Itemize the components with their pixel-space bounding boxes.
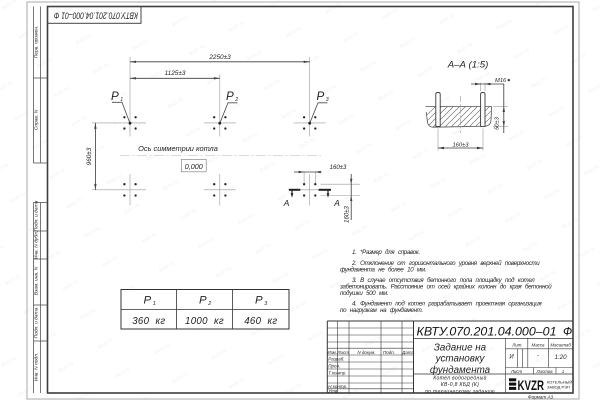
svg-text:КВТУ.070.201.04.000–01 Ф: КВТУ.070.201.04.000–01 Ф <box>54 11 138 21</box>
svg-text:-: - <box>537 353 539 359</box>
svg-text:Дата: Дата <box>401 350 414 355</box>
svg-text:360 кг: 360 кг <box>132 316 165 327</box>
svg-text:1: 1 <box>153 301 156 307</box>
svg-text:160±3: 160±3 <box>330 165 347 171</box>
svg-text:Разраб.: Разраб. <box>328 356 344 361</box>
svg-text:Формат А3: Формат А3 <box>528 394 554 399</box>
svg-text:1: 1 <box>120 97 123 103</box>
svg-text:фундамента не более 10 мм.: фундамента не более 10 мм. <box>340 267 426 274</box>
svg-text:P: P <box>317 90 325 103</box>
svg-text:P: P <box>111 90 119 103</box>
svg-text:по нагрузкам на фундамент.: по нагрузкам на фундамент. <box>340 307 423 314</box>
svg-text:Взам. инв. N: Взам. инв. N <box>33 266 39 295</box>
svg-text:2: 2 <box>207 301 211 307</box>
svg-text:И: И <box>509 354 514 360</box>
svg-text:Утв.: Утв. <box>328 389 338 394</box>
svg-text:1000 кг: 1000 кг <box>185 316 224 327</box>
svg-text:1125±3: 1125±3 <box>165 70 186 77</box>
svg-text:А: А <box>283 198 290 208</box>
svg-text:Лист: Лист <box>510 369 523 374</box>
svg-text:подушки 500 мм.: подушки 500 мм. <box>340 290 388 297</box>
svg-text:2: 2 <box>234 97 238 103</box>
svg-text:Подп. и дата: Подп. и дата <box>33 307 39 338</box>
svg-text:160±3: 160±3 <box>344 206 350 223</box>
svg-text:Инв. N дубл.: Инв. N дубл. <box>33 231 39 259</box>
svg-text:P: P <box>226 90 234 103</box>
svg-text:Задание на: Задание на <box>434 342 487 353</box>
svg-text:Котел водогрейный: Котел водогрейный <box>433 374 487 381</box>
svg-text:460 кг: 460 кг <box>244 316 277 327</box>
svg-text:Лит.: Лит. <box>511 343 522 348</box>
svg-text:0,000: 0,000 <box>185 162 203 171</box>
svg-text:N докум.: N докум. <box>357 350 375 355</box>
svg-text:Пров.: Пров. <box>328 363 340 368</box>
svg-text:50±3: 50±3 <box>495 116 501 130</box>
svg-text:А: А <box>333 198 340 208</box>
svg-text:Лист: Лист <box>336 350 349 355</box>
svg-text:Инв. N подл.: Инв. N подл. <box>33 353 39 382</box>
svg-text:Ф: Ф <box>563 326 572 339</box>
svg-text:3: 3 <box>326 97 329 103</box>
svg-text:Масштаб: Масштаб <box>550 343 571 348</box>
svg-text:P: P <box>199 295 207 307</box>
svg-text:Т.контр.: Т.контр. <box>328 370 346 375</box>
svg-text:Изм.: Изм. <box>327 350 337 355</box>
svg-text:Подп.: Подп. <box>383 350 395 355</box>
svg-text:КВТУ.070.201.04.000–01: КВТУ.070.201.04.000–01 <box>417 326 557 339</box>
svg-text:160±3: 160±3 <box>452 142 469 148</box>
svg-text:1. *Размер для справок.: 1. *Размер для справок. <box>352 249 420 256</box>
svg-text:А–А (1:5): А–А (1:5) <box>447 60 489 71</box>
svg-text:КОТЕЛЬНЫЙ: КОТЕЛЬНЫЙ <box>547 379 572 384</box>
svg-text:Листов: Листов <box>536 369 554 374</box>
svg-text:Справ. N: Справ. N <box>33 109 39 130</box>
svg-text:1:20: 1:20 <box>554 354 567 361</box>
svg-text:установку: установку <box>435 353 486 364</box>
svg-text:P: P <box>144 295 152 307</box>
svg-text:Масса: Масса <box>532 343 546 348</box>
svg-text:960±3: 960±3 <box>86 147 93 165</box>
svg-text:по техническому заданию: по техническому заданию <box>425 389 495 395</box>
svg-text:КВ-0,8 КБД (К): КВ-0,8 КБД (К) <box>441 382 479 388</box>
svg-text:KVZR: KVZR <box>518 378 545 393</box>
svg-text:Перв. примен.: Перв. примен. <box>33 26 39 59</box>
svg-text:Ось симметрии котла: Ось симметрии котла <box>138 144 218 153</box>
svg-text:М16: М16 <box>495 78 507 84</box>
svg-text:P: P <box>255 295 263 307</box>
svg-text:Подп. и дата: Подп. и дата <box>33 200 39 231</box>
svg-text:ЗАВОД РЭП: ЗАВОД РЭП <box>547 385 570 390</box>
svg-text:2250±3: 2250±3 <box>208 54 231 61</box>
svg-text:3: 3 <box>264 301 267 307</box>
